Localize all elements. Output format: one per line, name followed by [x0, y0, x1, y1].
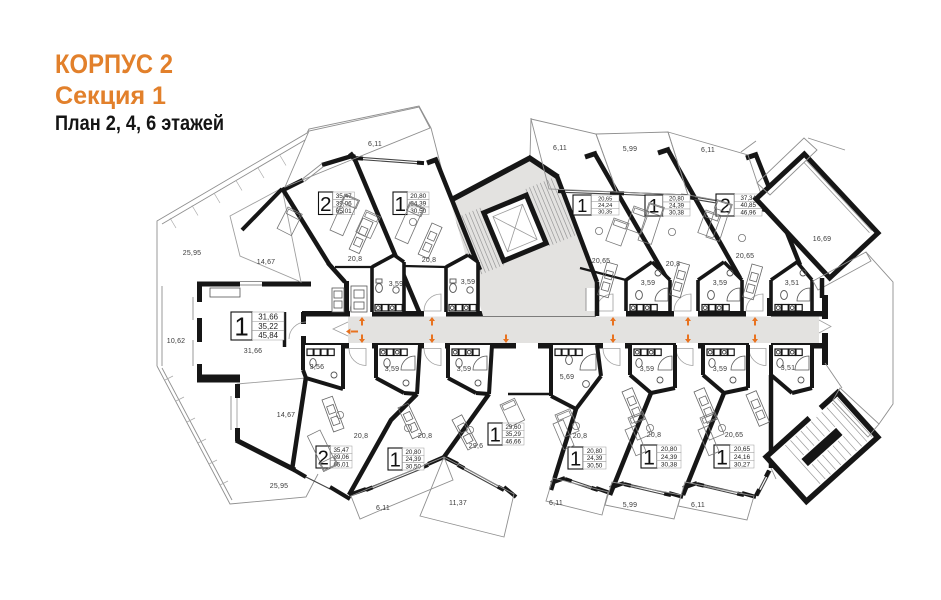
svg-text:20,65: 20,65	[592, 258, 611, 265]
svg-text:План 2, 4, 6 этажей: План 2, 4, 6 этажей	[55, 111, 224, 135]
svg-text:6,11: 6,11	[368, 141, 382, 148]
svg-text:5,99: 5,99	[623, 146, 637, 153]
svg-text:20,65: 20,65	[734, 446, 751, 453]
svg-text:20,8: 20,8	[573, 433, 587, 440]
svg-text:20,8: 20,8	[418, 433, 432, 440]
svg-text:20,8: 20,8	[348, 256, 362, 263]
svg-text:25,95: 25,95	[270, 483, 289, 490]
svg-text:16,69: 16,69	[813, 236, 832, 243]
svg-text:3,59: 3,59	[713, 280, 727, 287]
svg-text:3,59: 3,59	[389, 281, 403, 288]
svg-text:2: 2	[720, 196, 731, 218]
svg-text:5,69: 5,69	[560, 374, 574, 381]
svg-text:24,39: 24,39	[661, 454, 678, 461]
svg-text:14,67: 14,67	[277, 412, 296, 419]
svg-text:20,80: 20,80	[587, 448, 603, 455]
svg-text:31,66: 31,66	[244, 348, 263, 355]
svg-text:24,39: 24,39	[587, 455, 603, 462]
svg-text:30,38: 30,38	[661, 462, 678, 469]
svg-text:20,65: 20,65	[725, 432, 744, 439]
svg-text:3,51: 3,51	[785, 280, 799, 287]
svg-text:45,84: 45,84	[258, 331, 278, 340]
svg-text:5,99: 5,99	[623, 502, 637, 509]
svg-text:30,35: 30,35	[598, 210, 612, 216]
svg-text:1: 1	[490, 425, 501, 447]
svg-text:35,22: 35,22	[258, 322, 278, 331]
svg-text:3,59: 3,59	[640, 366, 654, 373]
svg-text:46,66: 46,66	[505, 439, 521, 446]
svg-text:6,11: 6,11	[553, 145, 567, 152]
svg-text:24,39: 24,39	[669, 204, 685, 210]
svg-text:Секция 1: Секция 1	[55, 82, 166, 110]
svg-text:6,11: 6,11	[376, 505, 390, 512]
svg-text:3,59: 3,59	[461, 279, 475, 286]
svg-text:20,80: 20,80	[661, 446, 678, 453]
svg-text:1: 1	[570, 449, 581, 471]
svg-text:КОРПУС 2: КОРПУС 2	[55, 49, 173, 79]
svg-text:20,8: 20,8	[354, 433, 368, 440]
svg-text:2: 2	[320, 193, 332, 216]
svg-text:31,66: 31,66	[258, 313, 278, 322]
svg-text:30,38: 30,38	[669, 211, 685, 217]
svg-text:3,59: 3,59	[641, 280, 655, 287]
svg-text:3,59: 3,59	[385, 366, 399, 373]
svg-text:3,59: 3,59	[713, 366, 727, 373]
svg-text:2: 2	[318, 448, 329, 470]
svg-text:40,85: 40,85	[740, 202, 756, 209]
svg-text:20,8: 20,8	[422, 257, 436, 264]
svg-text:30,50: 30,50	[587, 463, 603, 470]
svg-text:6,11: 6,11	[691, 502, 705, 509]
svg-text:14,67: 14,67	[257, 259, 276, 266]
svg-text:35,47: 35,47	[333, 447, 349, 454]
svg-text:20,80: 20,80	[405, 449, 421, 456]
svg-text:3,59: 3,59	[457, 366, 471, 373]
svg-text:35,29: 35,29	[505, 431, 521, 438]
svg-text:20,80: 20,80	[410, 193, 426, 200]
svg-text:6,11: 6,11	[701, 147, 715, 154]
svg-text:30,27: 30,27	[734, 462, 751, 469]
svg-text:20,65: 20,65	[736, 253, 755, 260]
svg-text:1: 1	[394, 193, 406, 216]
svg-text:10,62: 10,62	[167, 338, 186, 345]
svg-text:6,11: 6,11	[549, 500, 563, 507]
svg-text:20,80: 20,80	[669, 197, 685, 203]
svg-text:1: 1	[390, 450, 401, 472]
svg-text:1: 1	[643, 446, 655, 469]
svg-text:24,16: 24,16	[734, 454, 751, 461]
svg-text:3,56: 3,56	[310, 364, 324, 371]
svg-text:29,6: 29,6	[469, 443, 483, 450]
svg-text:1: 1	[716, 446, 728, 469]
svg-text:25,95: 25,95	[183, 250, 202, 257]
svg-text:24,39: 24,39	[405, 456, 421, 463]
svg-text:20,65: 20,65	[598, 196, 612, 202]
svg-text:1: 1	[234, 314, 248, 342]
svg-text:11,37: 11,37	[449, 500, 467, 507]
svg-text:1: 1	[577, 195, 587, 216]
svg-text:1: 1	[649, 197, 660, 218]
svg-text:46,96: 46,96	[740, 210, 756, 217]
svg-text:3,51: 3,51	[781, 365, 795, 372]
